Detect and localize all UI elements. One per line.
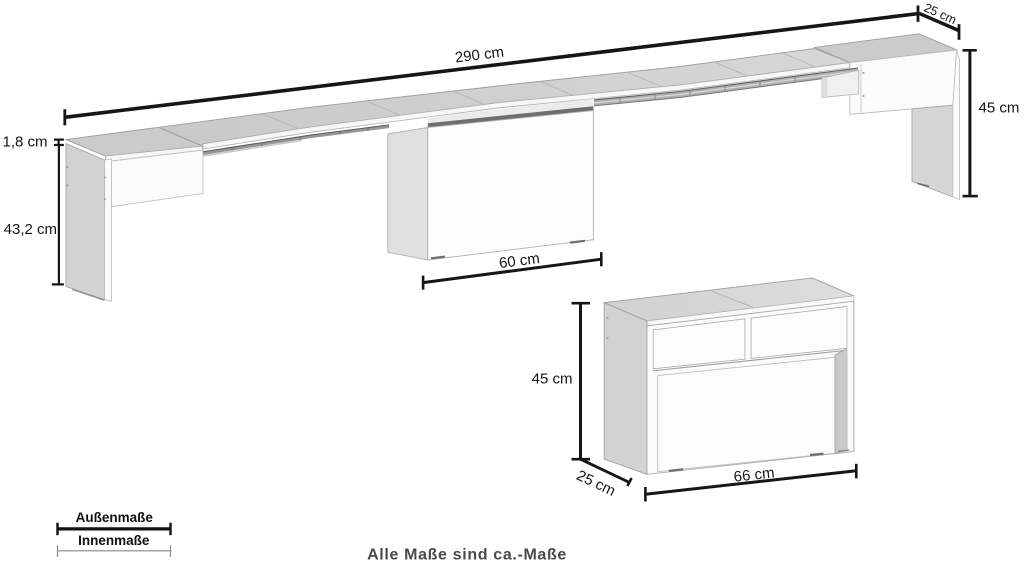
svg-text:45 cm: 45 cm	[532, 370, 573, 387]
svg-text:Außenmaße: Außenmaße	[76, 510, 154, 525]
svg-text:43,2 cm: 43,2 cm	[4, 221, 57, 238]
svg-text:45 cm: 45 cm	[979, 100, 1020, 117]
svg-text:Innenmaße: Innenmaße	[78, 533, 150, 548]
svg-text:Alle Maße sind ca.-Maße: Alle Maße sind ca.-Maße	[367, 547, 567, 564]
svg-text:1,8 cm: 1,8 cm	[2, 133, 47, 150]
